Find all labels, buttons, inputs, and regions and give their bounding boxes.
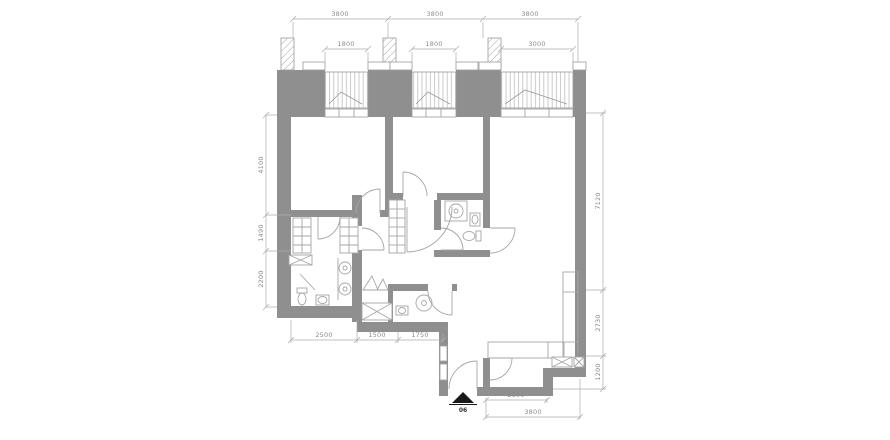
shower-icon xyxy=(416,295,432,311)
windows xyxy=(303,62,586,117)
sill-box xyxy=(303,62,325,70)
sink-icon xyxy=(316,295,329,305)
wall-ensuite-bottom xyxy=(434,250,490,257)
entry-marker: 06 xyxy=(449,392,477,414)
door-arc xyxy=(403,172,427,196)
wardrobe xyxy=(389,200,405,253)
wall-bottom-left xyxy=(277,306,357,318)
dim-bottom-1: 2500 xyxy=(315,331,332,339)
toilet-icon xyxy=(297,288,307,305)
wardrobe xyxy=(293,218,311,253)
entry-door-arc xyxy=(449,361,477,389)
dim-top-2: 3800 xyxy=(426,10,443,18)
wall-pier-b xyxy=(368,70,412,117)
wall-b2-left xyxy=(385,193,403,200)
wall-connector xyxy=(543,377,553,387)
toilet-icon xyxy=(463,231,481,241)
frame-box xyxy=(440,346,447,361)
wall-kitchen xyxy=(483,358,490,387)
door-arc xyxy=(318,217,340,239)
wall-under-shaft xyxy=(543,368,586,377)
wall-ensuite-left xyxy=(434,200,441,230)
kitchen-counter xyxy=(488,272,578,358)
frame-box xyxy=(440,364,447,380)
column-hatch-icon xyxy=(281,38,294,70)
basin-icon xyxy=(363,276,388,290)
dim-top-3: 3800 xyxy=(521,10,538,18)
wall-left xyxy=(277,70,291,318)
dim-window-1: 1800 xyxy=(337,40,354,48)
door-arc xyxy=(362,228,384,250)
window-bay-2 xyxy=(412,72,456,108)
wall-pier-d xyxy=(573,70,586,117)
dim-bottom-3: 1750 xyxy=(411,331,428,339)
sill-inner xyxy=(325,109,368,117)
wall-b-left xyxy=(291,210,356,217)
sill-box xyxy=(479,62,501,70)
dim-entry-1: 2500 xyxy=(507,391,524,399)
sill-box xyxy=(456,62,478,70)
sink-icon xyxy=(396,306,408,315)
dim-entry-2: 3800 xyxy=(524,408,541,416)
sill-box xyxy=(573,62,586,70)
dim-right-2: 2730 xyxy=(594,314,602,331)
door-arc xyxy=(490,358,512,380)
dim-right-3: 1200 xyxy=(594,363,602,380)
wall-right xyxy=(575,117,586,377)
shaft-icon xyxy=(362,303,392,320)
entry-unit-label: 06 xyxy=(459,407,467,414)
shaft-icon xyxy=(574,357,584,367)
shower-icon xyxy=(445,201,467,221)
sill-inner xyxy=(412,109,456,117)
shaft-icon xyxy=(289,255,312,265)
entry-arrow-icon xyxy=(452,392,474,403)
wall-pier-a xyxy=(291,70,325,117)
dim-left-1: 4100 xyxy=(257,156,265,173)
door-arc xyxy=(490,228,515,253)
dim-window-3: 3000 xyxy=(528,40,545,48)
sill-box xyxy=(368,62,390,70)
dim-bottom-2: 1500 xyxy=(368,331,385,339)
dim-top-1: 3800 xyxy=(331,10,348,18)
wall-d-top xyxy=(483,117,490,228)
window-bay-1 xyxy=(325,72,368,108)
dim-right-1: 7120 xyxy=(594,192,602,209)
wc-closet xyxy=(338,258,351,300)
wall-guestbath-top-right xyxy=(452,284,457,291)
sill-box xyxy=(390,62,412,70)
dim-window-2: 1800 xyxy=(425,40,442,48)
wall-guestbath-top-left xyxy=(392,284,428,291)
wall-c-bottom xyxy=(352,250,362,322)
sill-inner xyxy=(501,109,573,117)
dim-left-3: 2200 xyxy=(257,270,265,287)
dim-left-2: 1490 xyxy=(257,224,265,241)
wall-pier-c xyxy=(456,70,501,117)
door-arc xyxy=(441,228,463,250)
floor-plan-canvas: 3800 3800 3800 1800 1800 3000 4100 1490 … xyxy=(0,0,890,440)
walls xyxy=(277,70,586,396)
shaft-icon xyxy=(552,357,572,367)
wall-b2-right xyxy=(437,193,490,200)
sink-icon xyxy=(470,213,480,226)
wardrobe xyxy=(340,218,358,253)
floor-plan-drawing: 3800 3800 3800 1800 1800 3000 4100 1490 … xyxy=(0,0,890,440)
